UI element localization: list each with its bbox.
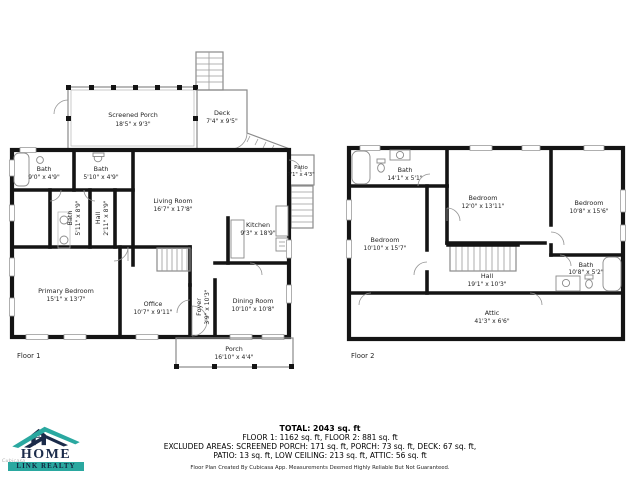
- home-link-realty-logo: HOME LINK REALTY: [8, 426, 84, 471]
- room-label-screened-porch: Screened Porch: [108, 111, 158, 119]
- floor2-label: Floor 2: [351, 352, 374, 360]
- room-dims-deck: 7'4" x 9'5": [206, 118, 238, 125]
- room-dims-bedroom-center: 12'0" x 13'11": [462, 203, 505, 210]
- room-dims-bedroom-right: 10'8" x 15'6": [569, 208, 608, 215]
- room-label-bath3: Bath: [66, 211, 74, 226]
- room-dims-attic: 41'3" x 6'6": [474, 318, 510, 325]
- summary-disclaimer: Floor Plan Created By Cubicasa App. Meas…: [0, 464, 640, 473]
- room-dims-dining-room: 10'10" x 10'8": [232, 306, 275, 313]
- room-dims-screened-porch: 18'5" x 9'3": [115, 121, 151, 128]
- room-label-bath-f2a: Bath: [398, 166, 413, 174]
- room-dims-bedroom-left: 10'10" x 15'7": [364, 245, 407, 252]
- summary-floors: FLOOR 1: 1162 sq. ft, FLOOR 2: 881 sq. f…: [0, 433, 640, 442]
- room-label-kitchen: Kitchen: [246, 221, 270, 229]
- summary-total: TOTAL: 2043 sq. ft: [0, 424, 640, 433]
- room-dims-bath-f2b: 10'8" x 5'2": [568, 269, 604, 276]
- summary-excluded-1: EXCLUDED AREAS: SCREENED PORCH: 171 sq. …: [0, 442, 640, 451]
- room-dims-living-room: 16'7" x 17'8": [153, 206, 192, 213]
- room-dims-bath3: 5'11" x 8'9": [75, 200, 82, 236]
- floor1-label: Floor 1: [17, 352, 40, 360]
- room-label-bath2: Bath: [94, 165, 109, 173]
- room-label-deck: Deck: [214, 109, 230, 117]
- room-label-primary-bedroom: Primary Bedroom: [38, 287, 94, 295]
- room-dims-office: 10'7" x 9'11": [133, 309, 172, 316]
- room-label-office: Office: [144, 300, 163, 308]
- room-dims-patio: 7'1" x 4'3": [287, 172, 314, 178]
- room-dims-kitchen: 9'3" x 18'9": [240, 230, 276, 237]
- cubicasa-watermark: Cubicasa: [2, 459, 25, 464]
- room-label-bath-f2b: Bath: [579, 261, 594, 269]
- floor1-plan: Screened Porch 18'5" x 9'3" Deck 7'4" x …: [10, 52, 315, 369]
- room-label-bath1: Bath: [37, 165, 52, 173]
- room-dims-hall-f2: 19'1" x 10'3": [467, 281, 506, 288]
- room-dims-bath-f2a: 14'1" x 5'1": [387, 175, 423, 182]
- room-label-bedroom-left: Bedroom: [371, 236, 400, 244]
- room-label-hall-f2: Hall: [481, 272, 493, 280]
- deck-stairs: [196, 52, 223, 90]
- summary-excluded-2: PATIO: 13 sq. ft, LOW CEILING: 213 sq. f…: [0, 451, 640, 460]
- room-label-living-room: Living Room: [153, 197, 192, 205]
- room-label-patio: Patio: [294, 165, 308, 171]
- room-label-bedroom-center: Bedroom: [469, 194, 498, 202]
- floor2-plan: Bath 14'1" x 5'1" Bedroom 12'0" x 13'11"…: [347, 146, 626, 361]
- room-dims-bath1: 9'0" x 4'9": [28, 174, 60, 181]
- room-label-attic: Attic: [485, 309, 500, 317]
- area-summary: TOTAL: 2043 sq. ft FLOOR 1: 1162 sq. ft,…: [0, 424, 640, 473]
- room-label-dining-room: Dining Room: [233, 297, 274, 305]
- room-dims-hall1: 2'11" x 8'9": [103, 200, 110, 236]
- room-label-foyer: Foyer: [195, 298, 203, 316]
- room-dims-porch: 16'10" x 4'4": [214, 354, 253, 361]
- room-label-bedroom-right: Bedroom: [575, 199, 604, 207]
- room-label-porch: Porch: [225, 345, 243, 353]
- house-roof-icon: [8, 426, 84, 448]
- room-dims-primary-bedroom: 15'1" x 13'7": [46, 296, 85, 303]
- room-label-hall1: Hall: [94, 212, 102, 224]
- room-dims-foyer: 3'9" x 10'3": [204, 289, 211, 325]
- floorplan-canvas: Screened Porch 18'5" x 9'3" Deck 7'4" x …: [0, 0, 640, 480]
- room-dims-bath2: 5'10" x 4'9": [83, 174, 119, 181]
